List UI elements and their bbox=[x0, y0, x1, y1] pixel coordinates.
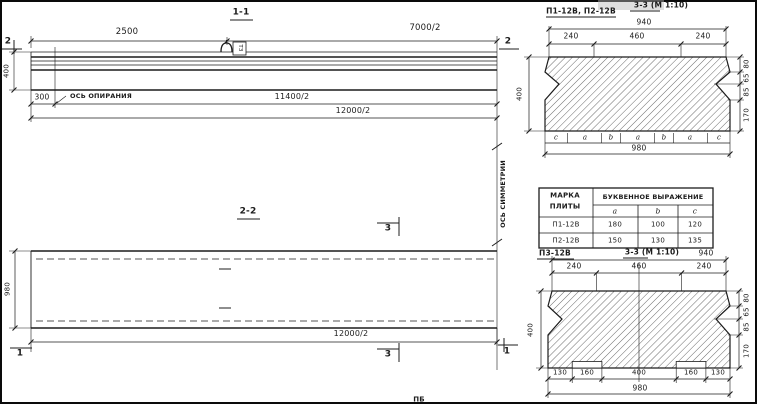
table-row2-a: 150 bbox=[608, 238, 622, 245]
cut-mark-3-top: 3 bbox=[385, 225, 391, 234]
letter-a-2: a bbox=[636, 135, 640, 142]
dim-240-b: 240 bbox=[696, 32, 711, 40]
dim-460-a: 460 bbox=[630, 32, 645, 40]
drawing-linework bbox=[0, 0, 757, 404]
dim-170-bottom: 170 bbox=[744, 344, 751, 358]
letter-a-1: a bbox=[583, 135, 587, 142]
dim-240-c: 240 bbox=[567, 262, 582, 270]
lifting-loop-tag: ТЗ bbox=[236, 44, 242, 51]
section-2-2-linework bbox=[9, 217, 518, 362]
cut-mark-1-right: 1 bbox=[504, 348, 510, 357]
dim-400-height: 400 bbox=[4, 64, 11, 78]
letter-c-1: c bbox=[554, 135, 558, 142]
section-bottom-title: 3-3 (М 1:10) bbox=[625, 248, 679, 256]
dim-940-top: 940 bbox=[637, 18, 652, 26]
cut-mark-3-bottom: 3 bbox=[385, 351, 391, 360]
section-3-3-bottom-linework bbox=[536, 256, 743, 398]
dim-980-plan: 980 bbox=[5, 282, 12, 296]
dim-65-top: 65 bbox=[744, 73, 751, 82]
section-bottom-label: П3-12В bbox=[539, 249, 571, 257]
dim-460-b: 460 bbox=[632, 262, 647, 270]
table-row2-b: 130 bbox=[651, 238, 665, 245]
dim-300: 300 bbox=[35, 93, 50, 101]
bottom-partial-note: ПБ bbox=[413, 397, 425, 404]
support-axis-label: ОСЬ ОПИРАНИЯ bbox=[70, 93, 132, 100]
section-top-label: П1-12В, П2-12В bbox=[546, 7, 616, 15]
section-2-2-title: 2-2 bbox=[240, 208, 257, 217]
dim-170-top: 170 bbox=[744, 108, 751, 122]
drawing-sheet: 1-1 2500 7000/2 2 2 400 300 ОСЬ ОПИРАНИЯ… bbox=[0, 0, 757, 404]
cut-mark-1-left: 1 bbox=[17, 350, 23, 359]
table-row1-b: 100 bbox=[651, 222, 665, 229]
table-row1-c: 120 bbox=[688, 222, 702, 229]
table-col-b: b bbox=[655, 207, 660, 215]
table-col-c: c bbox=[693, 207, 697, 215]
cut-mark-2-left: 2 bbox=[5, 38, 11, 47]
table-row1-a: 180 bbox=[608, 222, 622, 229]
cut-mark-2-right: 2 bbox=[505, 38, 511, 47]
dim-980-sect-bottom: 980 bbox=[633, 384, 648, 392]
dim-12000-2-elev: 12000/2 bbox=[336, 107, 371, 115]
section-top-title: 3-3 (М 1:10) bbox=[634, 1, 688, 9]
dim-65-bottom: 65 bbox=[744, 307, 751, 316]
dim-240-a: 240 bbox=[564, 32, 579, 40]
dim-400-bottom-chain: 400 bbox=[632, 370, 646, 377]
dim-160-left: 160 bbox=[580, 370, 594, 377]
table-header-mark-1: МАРКА bbox=[550, 193, 580, 200]
dim-11400-2: 11400/2 bbox=[275, 93, 310, 101]
section-1-1-linework bbox=[2, 20, 519, 122]
dim-12000-2-plan: 12000/2 bbox=[334, 330, 369, 338]
dim-240-d: 240 bbox=[697, 262, 712, 270]
dim-80-top: 80 bbox=[744, 59, 751, 68]
dim-130-left: 130 bbox=[553, 370, 567, 377]
dim-85-top: 85 bbox=[744, 87, 751, 96]
table-header-expr: БУКВЕННОЕ ВЫРАЖЕНИЕ bbox=[603, 194, 704, 201]
dim-85-bottom: 85 bbox=[744, 322, 751, 331]
letter-c-2: c bbox=[717, 135, 721, 142]
dim-160-right: 160 bbox=[684, 370, 698, 377]
dim-7000-2: 7000/2 bbox=[409, 24, 440, 33]
table-row1-mark: П1-12В bbox=[552, 222, 579, 229]
table-col-a: a bbox=[613, 207, 618, 215]
letter-a-3: a bbox=[688, 135, 692, 142]
letter-b-1: b bbox=[609, 135, 614, 142]
dim-80-bottom: 80 bbox=[744, 293, 751, 302]
table-row2-mark: П2-12В bbox=[552, 238, 579, 245]
dim-2500: 2500 bbox=[116, 28, 138, 37]
symmetry-axis-label: ОСЬ СИММЕТРИИ bbox=[500, 160, 507, 228]
dim-980-sect-top: 980 bbox=[632, 144, 647, 152]
section-1-1-title: 1-1 bbox=[233, 9, 250, 18]
dim-940-bottom: 940 bbox=[699, 249, 714, 257]
dim-400-sect-bottom: 400 bbox=[528, 323, 535, 337]
dim-130-right: 130 bbox=[711, 370, 725, 377]
table-row2-c: 135 bbox=[688, 238, 702, 245]
dim-400-sect-top: 400 bbox=[517, 87, 524, 101]
table-header-mark-2: ПЛИТЫ bbox=[550, 204, 581, 211]
letter-b-2: b bbox=[662, 135, 667, 142]
